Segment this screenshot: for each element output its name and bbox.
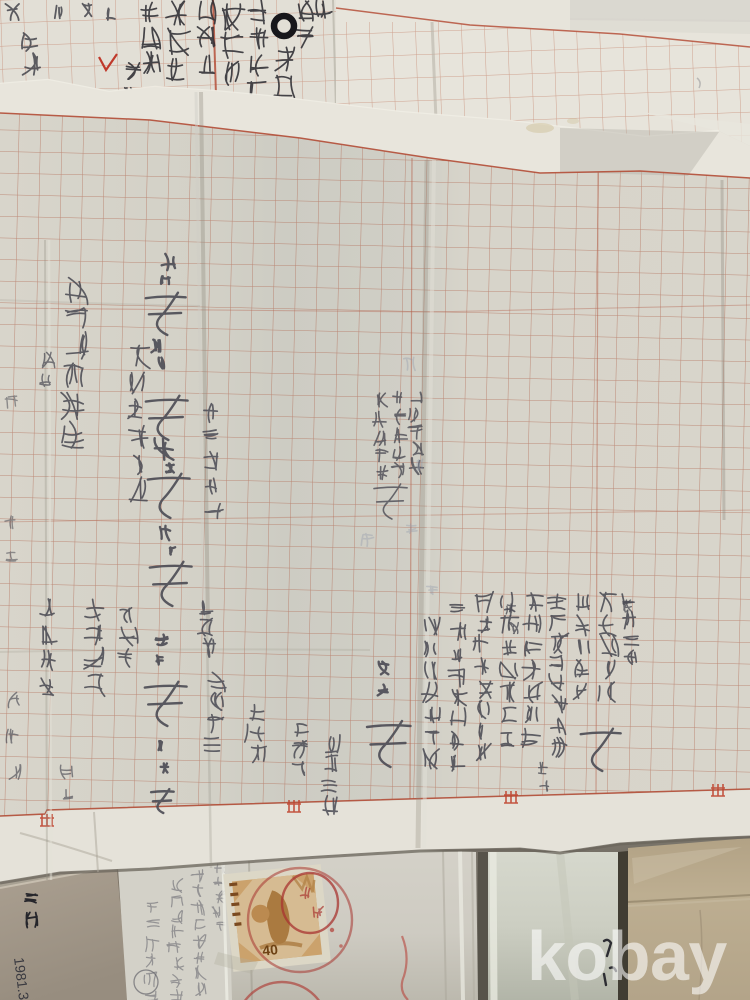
svg-text:kobay: kobay <box>527 917 727 995</box>
